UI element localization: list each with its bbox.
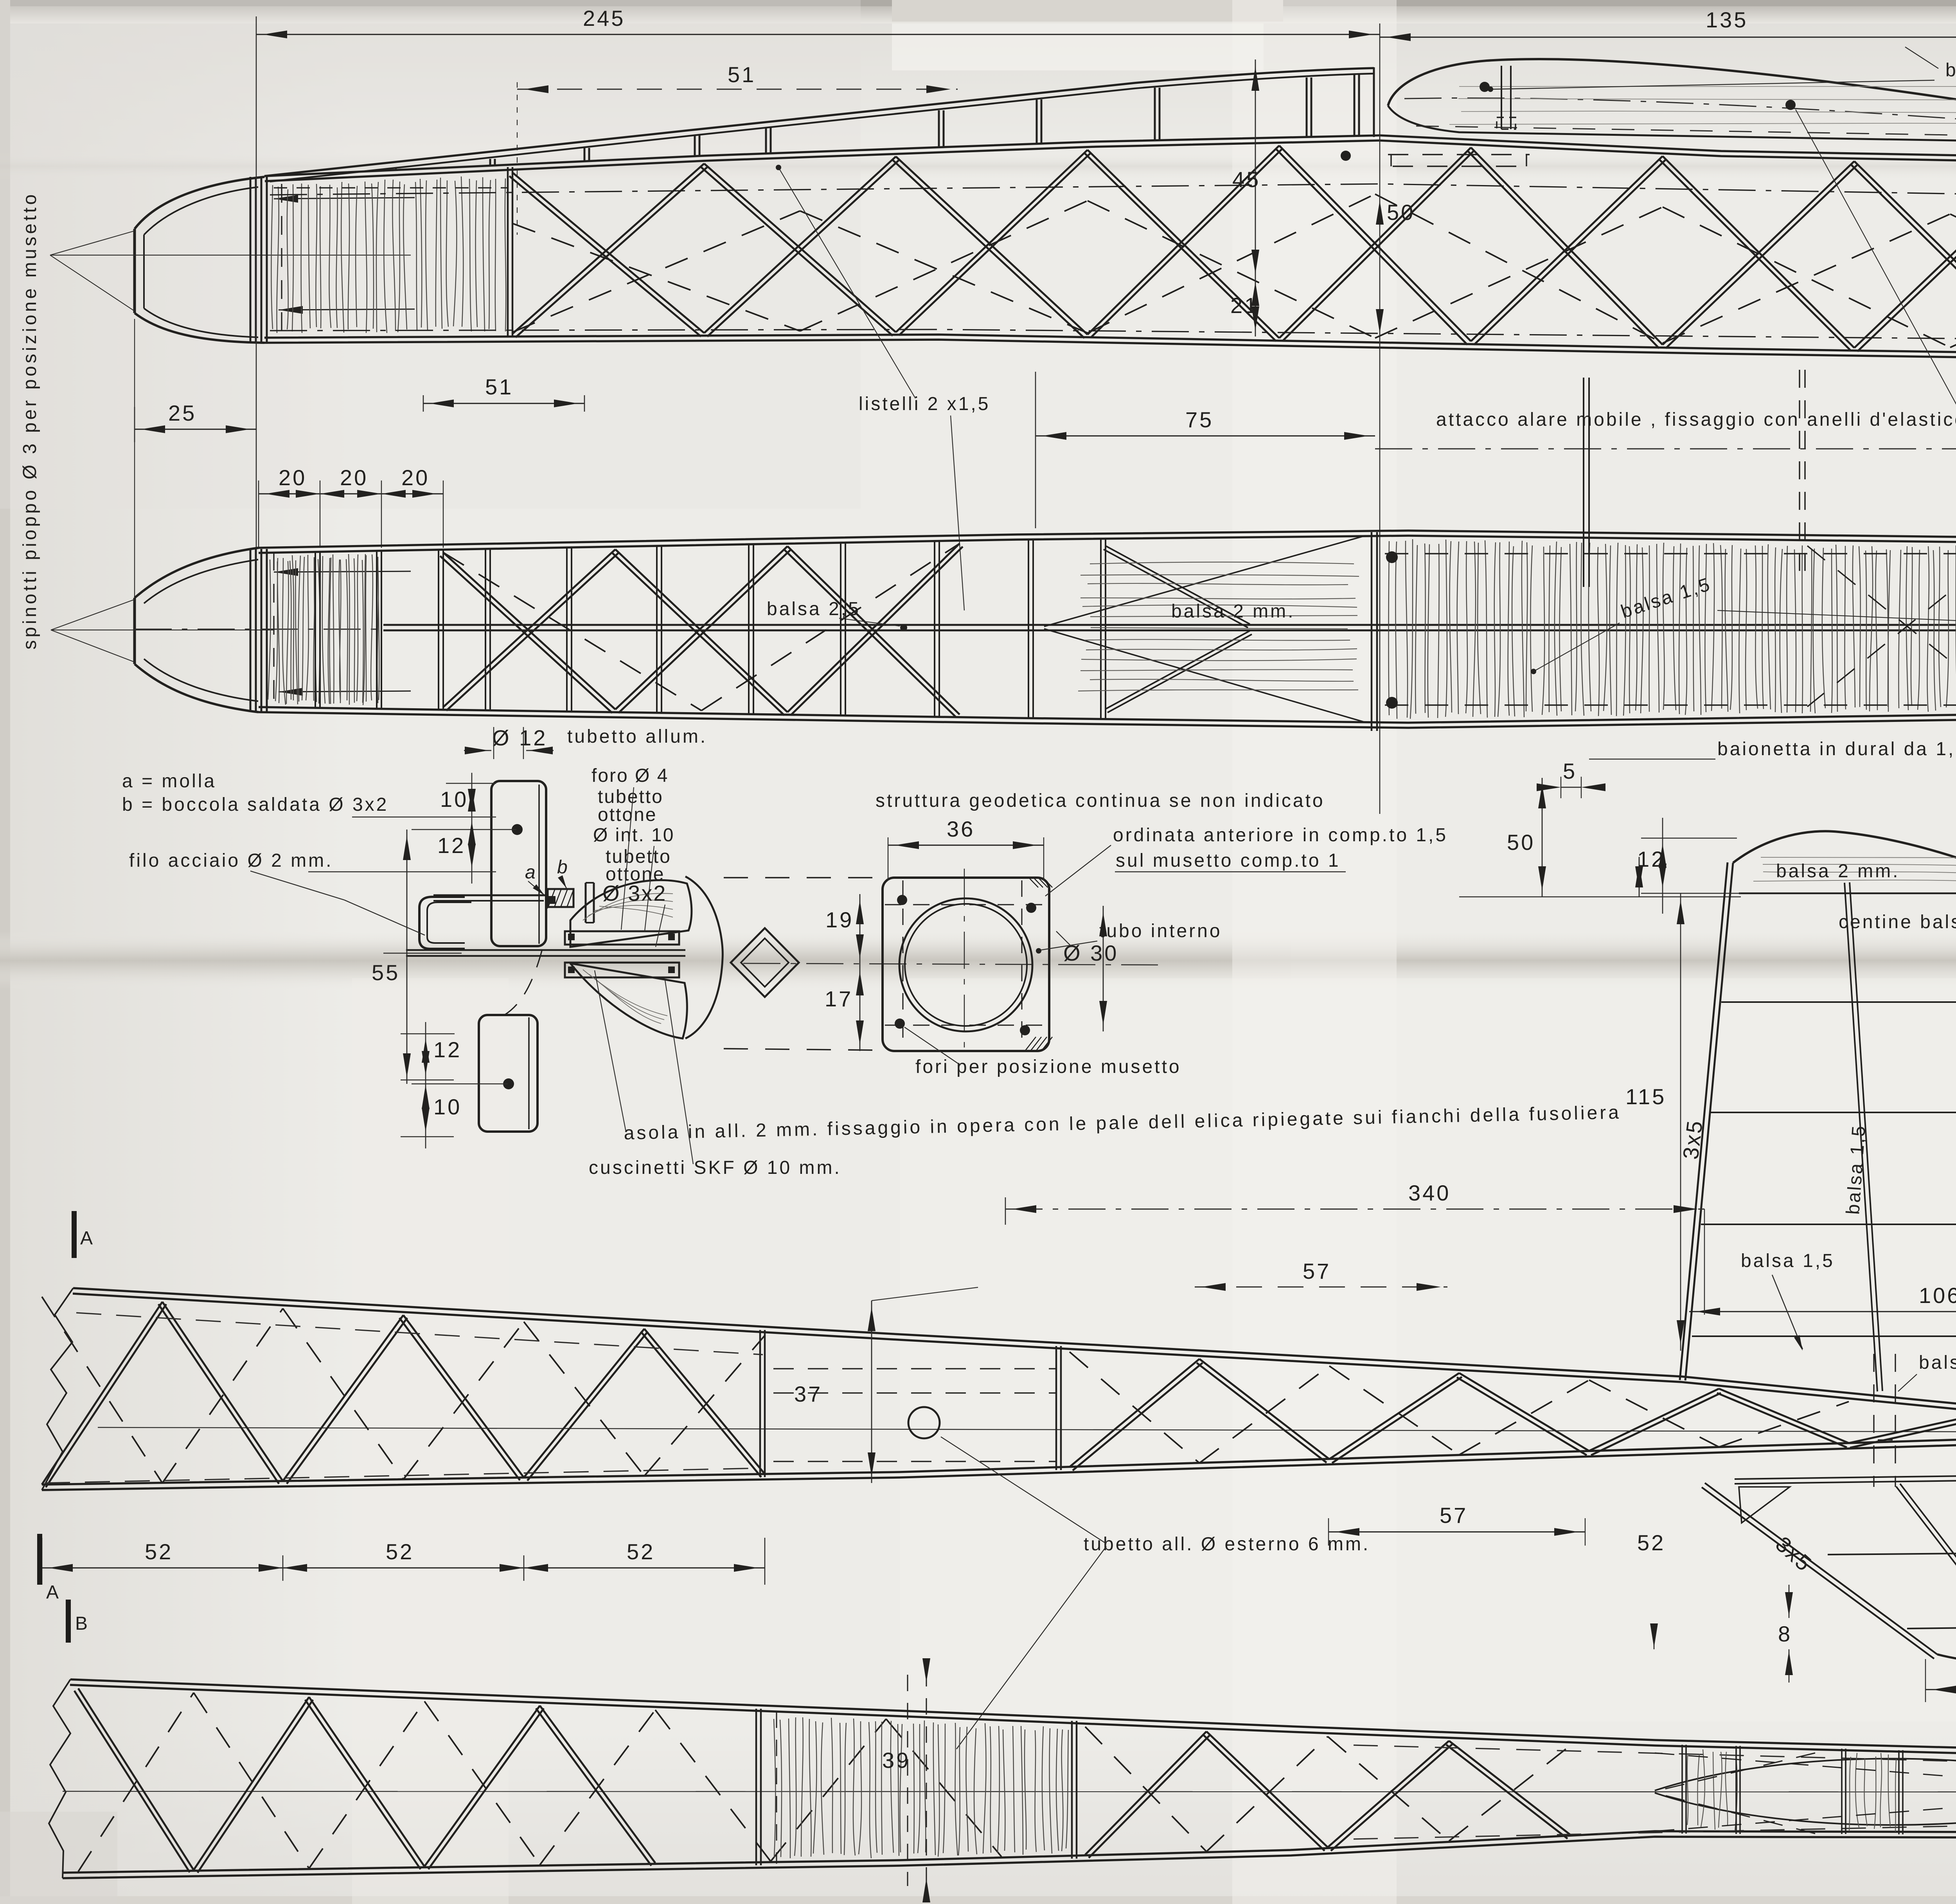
svg-text:baionetta in dural da 1,5: baionetta in dural da 1,5 [1717,739,1956,759]
svg-text:106: 106 [1919,1283,1956,1308]
svg-text:ottone: ottone [598,804,657,825]
svg-text:12: 12 [1637,847,1665,871]
svg-text:340: 340 [1408,1181,1451,1205]
svg-text:12: 12 [437,833,466,858]
svg-text:b: b [557,857,568,878]
svg-text:balsa 1,5: balsa 1,5 [1741,1251,1835,1271]
svg-text:a: a [525,862,536,883]
svg-text:a = molla: a = molla [122,771,216,792]
svg-text:tubetto allum.: tubetto allum. [567,726,707,747]
svg-text:12: 12 [433,1037,462,1062]
svg-text:fori per posizione musetto: fori per posizione musetto [915,1056,1181,1077]
svg-text:17: 17 [825,986,853,1011]
svg-text:245: 245 [583,6,625,31]
svg-text:foro Ø 4: foro Ø 4 [591,765,669,786]
svg-text:51: 51 [485,374,513,399]
svg-text:b = boccola saldata Ø 3x2: b = boccola saldata Ø 3x2 [122,794,388,815]
svg-text:Ø 3x2: Ø 3x2 [602,881,667,905]
svg-text:20: 20 [279,465,307,490]
svg-text:8: 8 [1778,1621,1792,1646]
svg-text:struttura geodetica continua: struttura geodetica continua se non indi… [876,790,1325,811]
svg-text:19: 19 [825,907,854,932]
svg-text:57: 57 [1303,1259,1331,1283]
svg-text:B: B [75,1613,90,1634]
svg-text:balsa 2: balsa 2 [1919,1352,1956,1373]
svg-text:135: 135 [1706,7,1748,32]
svg-text:20: 20 [340,465,368,490]
svg-text:52: 52 [145,1539,173,1564]
svg-text:10: 10 [440,787,468,812]
svg-text:57: 57 [1440,1503,1468,1528]
svg-text:balsa 2,5: balsa 2,5 [767,599,861,619]
svg-text:39: 39 [882,1748,910,1773]
svg-text:50: 50 [1387,200,1415,225]
svg-text:centine balsa 0,8: centine balsa 0,8 [1839,912,1956,932]
svg-text:tubetto all. Ø esterno 6: tubetto all. Ø esterno 6 mm. [1084,1534,1370,1555]
svg-text:listelli 2 x1,5: listelli 2 x1,5 [859,394,990,414]
svg-text:37: 37 [794,1382,822,1406]
svg-text:tubo interno: tubo interno [1099,921,1222,941]
svg-text:36: 36 [947,817,975,841]
svg-text:balsa 2 mm.: balsa 2 mm. [1171,601,1295,622]
svg-text:20: 20 [401,465,430,490]
svg-text:75: 75 [1185,407,1214,432]
svg-text:Ø 30: Ø 30 [1063,941,1118,965]
svg-text:52: 52 [386,1539,414,1564]
svg-text:51: 51 [728,62,756,87]
svg-text:5: 5 [1563,759,1577,783]
svg-text:A: A [80,1228,95,1249]
svg-text:cuscinetti SKF Ø 10 mm.: cuscinetti SKF Ø 10 mm. [589,1157,841,1178]
svg-text:21: 21 [1230,293,1258,318]
svg-text:filo acciaio Ø 2 mm.: filo acciaio Ø 2 mm. [129,850,333,871]
svg-text:balsa 1,5: balsa 1,5 [1945,60,1956,81]
svg-text:52: 52 [627,1539,655,1564]
svg-text:3x5: 3x5 [1678,1118,1707,1161]
svg-text:115: 115 [1625,1084,1666,1109]
svg-text:spinotti pioppo Ø 3 per posi: spinotti pioppo Ø 3 per posizione musett… [20,192,40,650]
svg-text:52: 52 [1637,1530,1665,1555]
svg-text:55: 55 [372,960,400,985]
svg-text:A: A [46,1582,61,1603]
svg-text:Ø 12: Ø 12 [492,725,547,750]
svg-text:50: 50 [1507,830,1535,855]
svg-text:10: 10 [433,1094,462,1119]
svg-text:balsa 2 mm.: balsa 2 mm. [1776,861,1900,882]
svg-text:Ø int. 10: Ø int. 10 [593,825,674,846]
svg-text:ordinata anteriore in comp.: ordinata anteriore in comp.to 1,5 [1113,825,1448,846]
svg-text:25: 25 [168,401,196,425]
svg-text:sul musetto comp.to 1: sul musetto comp.to 1 [1116,850,1341,871]
svg-text:45: 45 [1232,167,1260,192]
svg-text:attacco alare mobile , fissagg: attacco alare mobile , fissaggio con ane… [1436,409,1956,430]
